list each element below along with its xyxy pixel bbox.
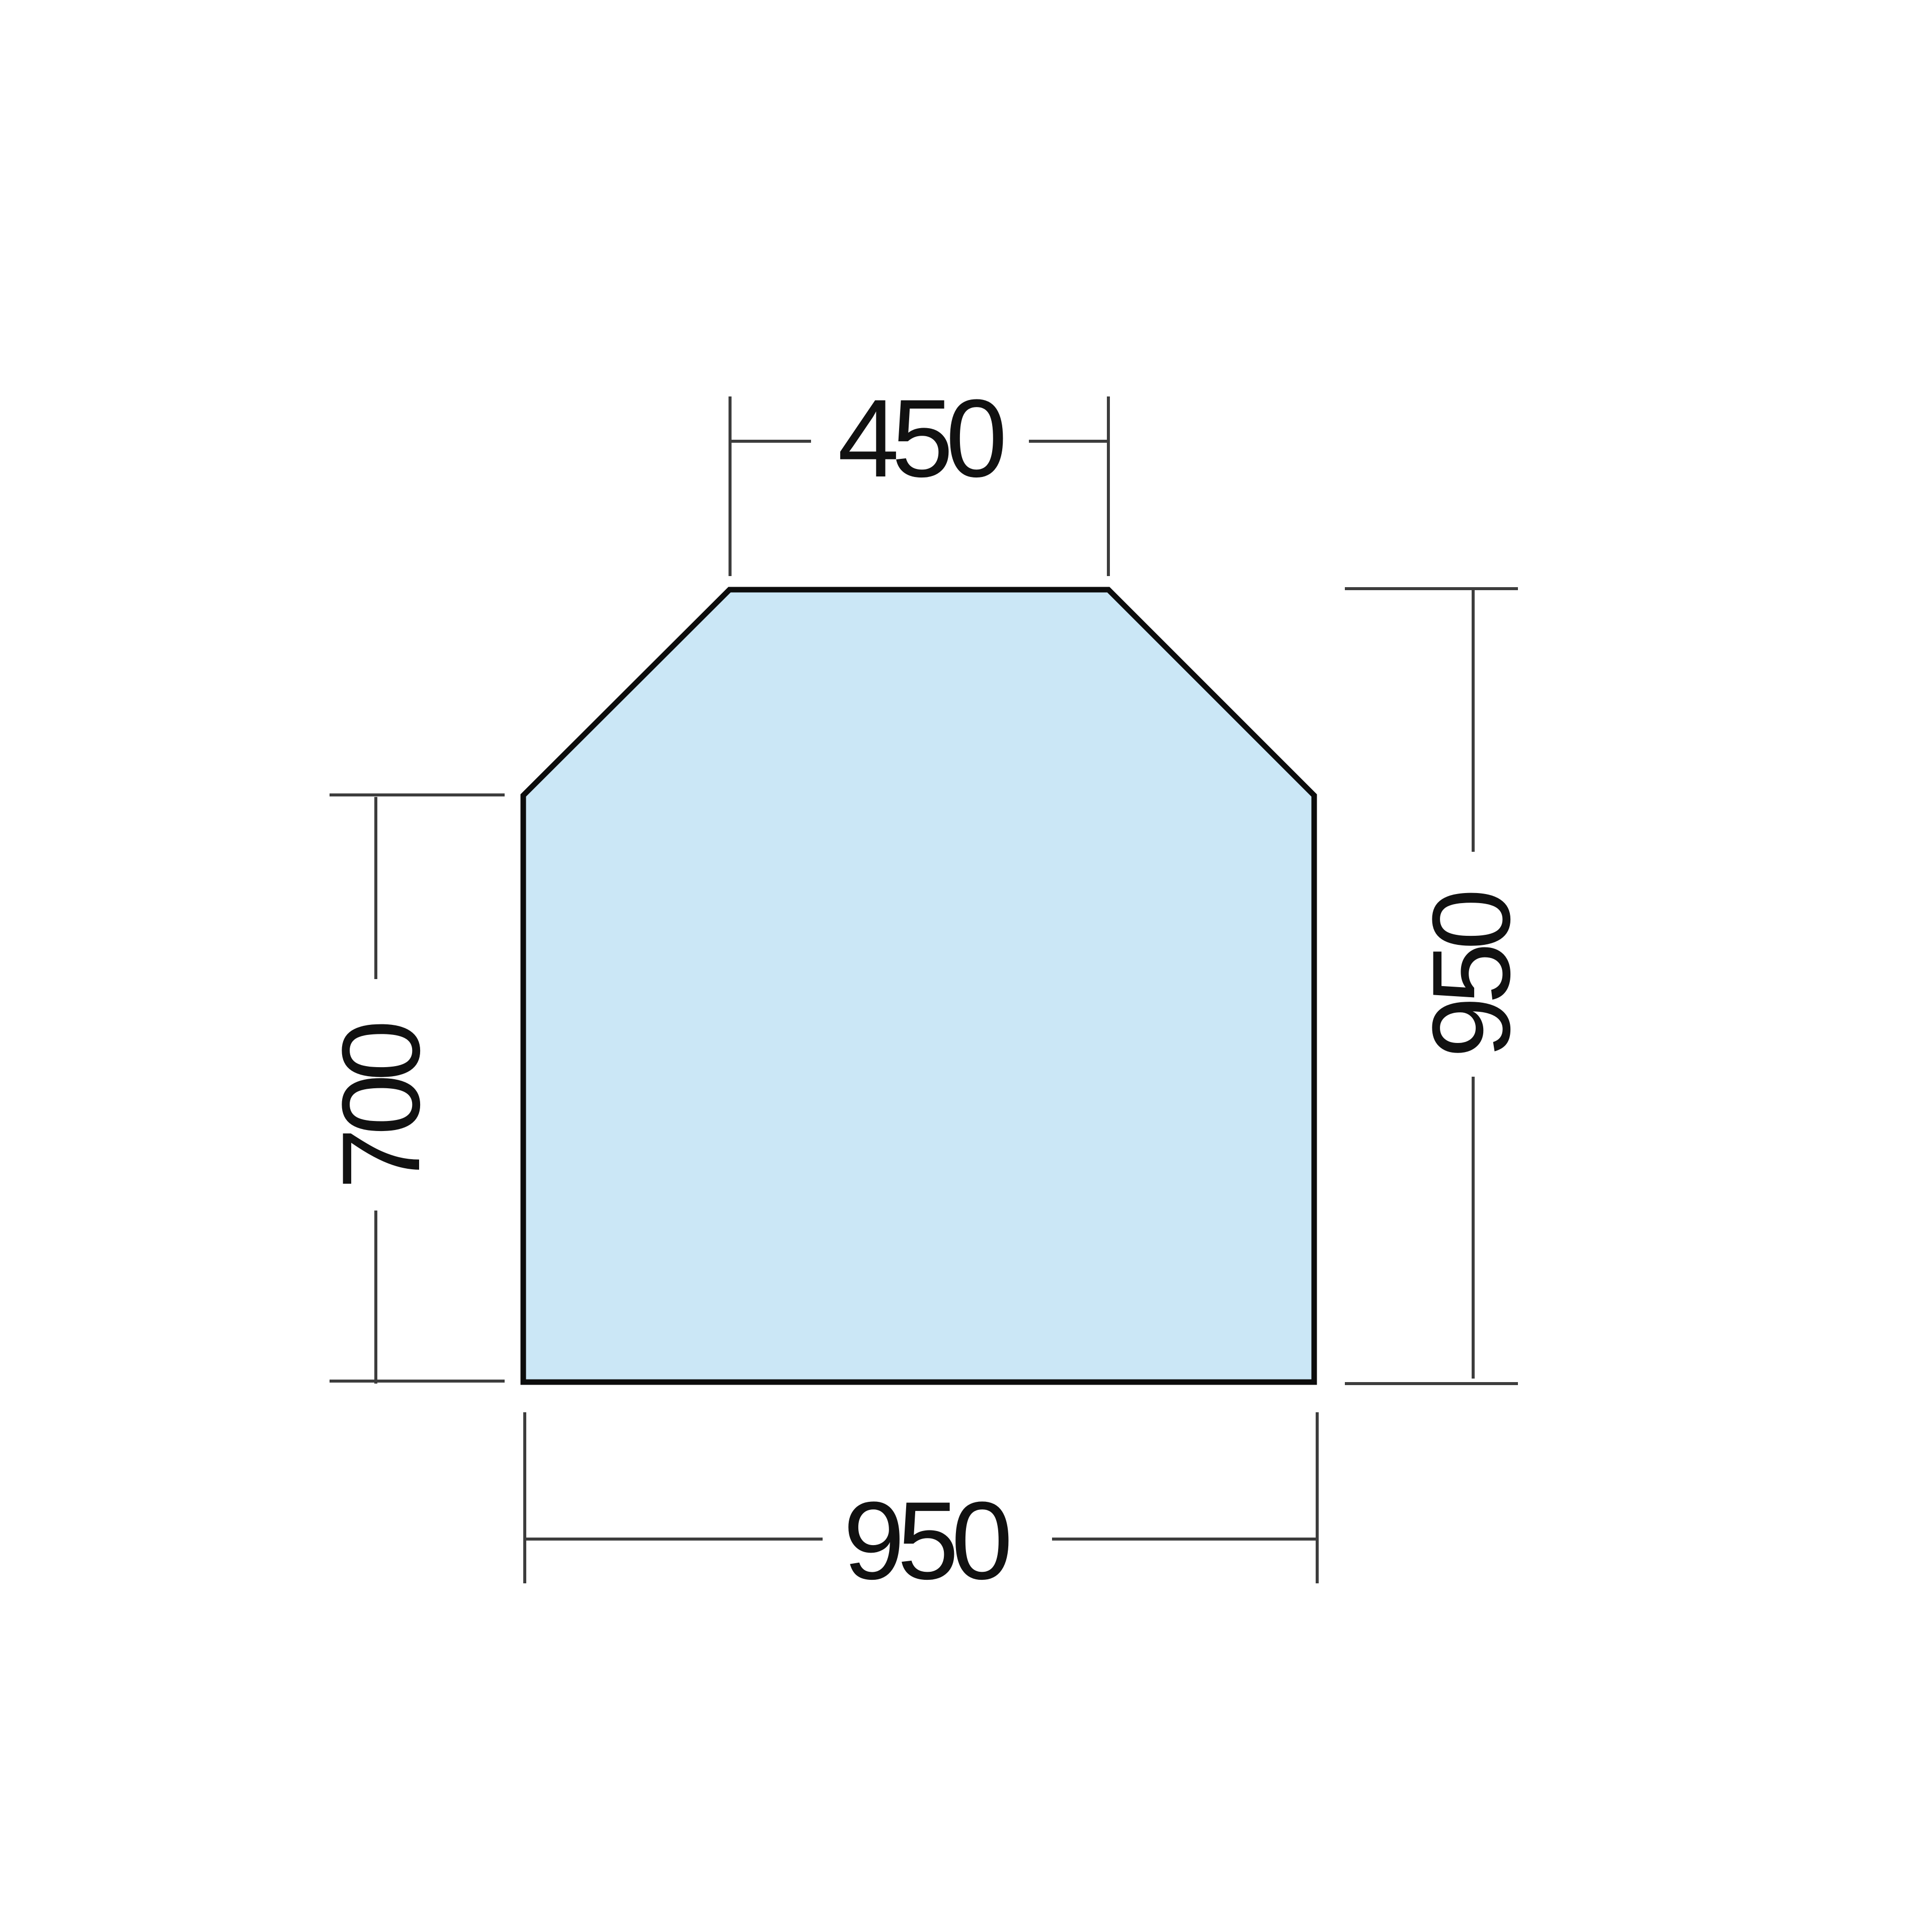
svg-text:950: 950 <box>843 1479 1009 1602</box>
svg-text:700: 700 <box>319 1024 443 1189</box>
svg-text:950: 950 <box>1409 893 1533 1058</box>
svg-text:450: 450 <box>838 376 1003 500</box>
